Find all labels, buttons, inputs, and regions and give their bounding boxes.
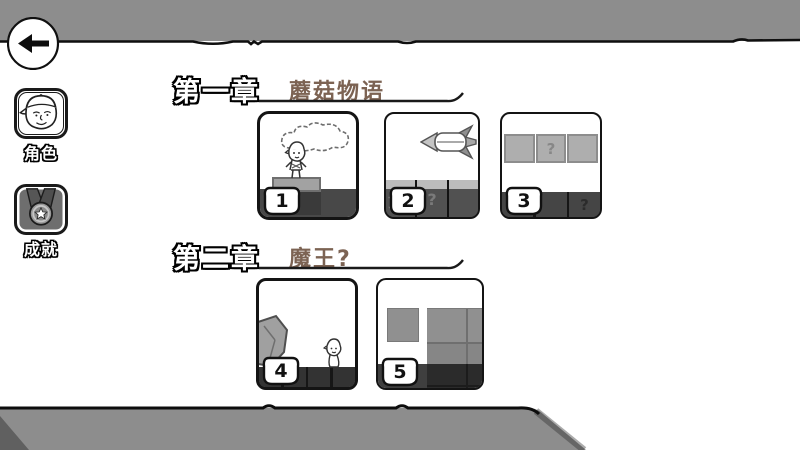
level-card-5[interactable]: 5 (376, 278, 484, 390)
player-icon (321, 337, 347, 369)
player-icon (282, 140, 310, 180)
character-avatar-icon (14, 88, 68, 139)
block (504, 134, 535, 163)
block (567, 134, 598, 163)
arrow-left-icon (7, 17, 60, 70)
bottom-bar (0, 398, 800, 450)
rocket-icon (420, 124, 478, 160)
sidebar-item-label: 角色 (6, 140, 76, 164)
sidebar-item-character[interactable]: 角色 (6, 88, 76, 164)
level-number-badge: 3 (504, 186, 544, 216)
level-number-badge: 5 (380, 357, 420, 387)
block (449, 180, 478, 217)
ground-question-block: ? (569, 192, 600, 217)
ground-block (308, 367, 330, 387)
level-card-3[interactable]: ? ? 3 (500, 112, 602, 219)
level-card-4[interactable]: 4 (256, 278, 358, 390)
ground-right (427, 364, 482, 388)
gray-block-wide (427, 308, 482, 342)
floating-blocks: ? (504, 134, 598, 163)
chapter-2-underline (257, 256, 467, 272)
level-number-badge: 1 (262, 186, 302, 216)
top-bar (0, 0, 800, 41)
medal-icon (14, 184, 68, 235)
question-block: ? (536, 134, 567, 163)
level-number-badge: 2 (388, 186, 428, 216)
sidebar-item-label: 成就 (6, 236, 76, 260)
sidebar-item-achievements[interactable]: 成就 (6, 184, 76, 260)
level-select-screen: 角色 成就 第一章 蘑菇物语 (0, 0, 800, 450)
level-card-2[interactable]: 顶我 ? 2 (384, 112, 480, 219)
ground-block (333, 367, 355, 387)
chapter-1-underline (257, 89, 467, 105)
chapter-2-heading: 第二章 (173, 237, 260, 276)
back-button[interactable] (7, 17, 60, 70)
gray-block-row-2 (427, 342, 482, 364)
gray-block (387, 308, 419, 342)
chapter-1-heading: 第一章 (173, 70, 260, 109)
level-number-badge: 4 (261, 356, 301, 386)
level-card-1[interactable]: 1 (257, 111, 359, 220)
